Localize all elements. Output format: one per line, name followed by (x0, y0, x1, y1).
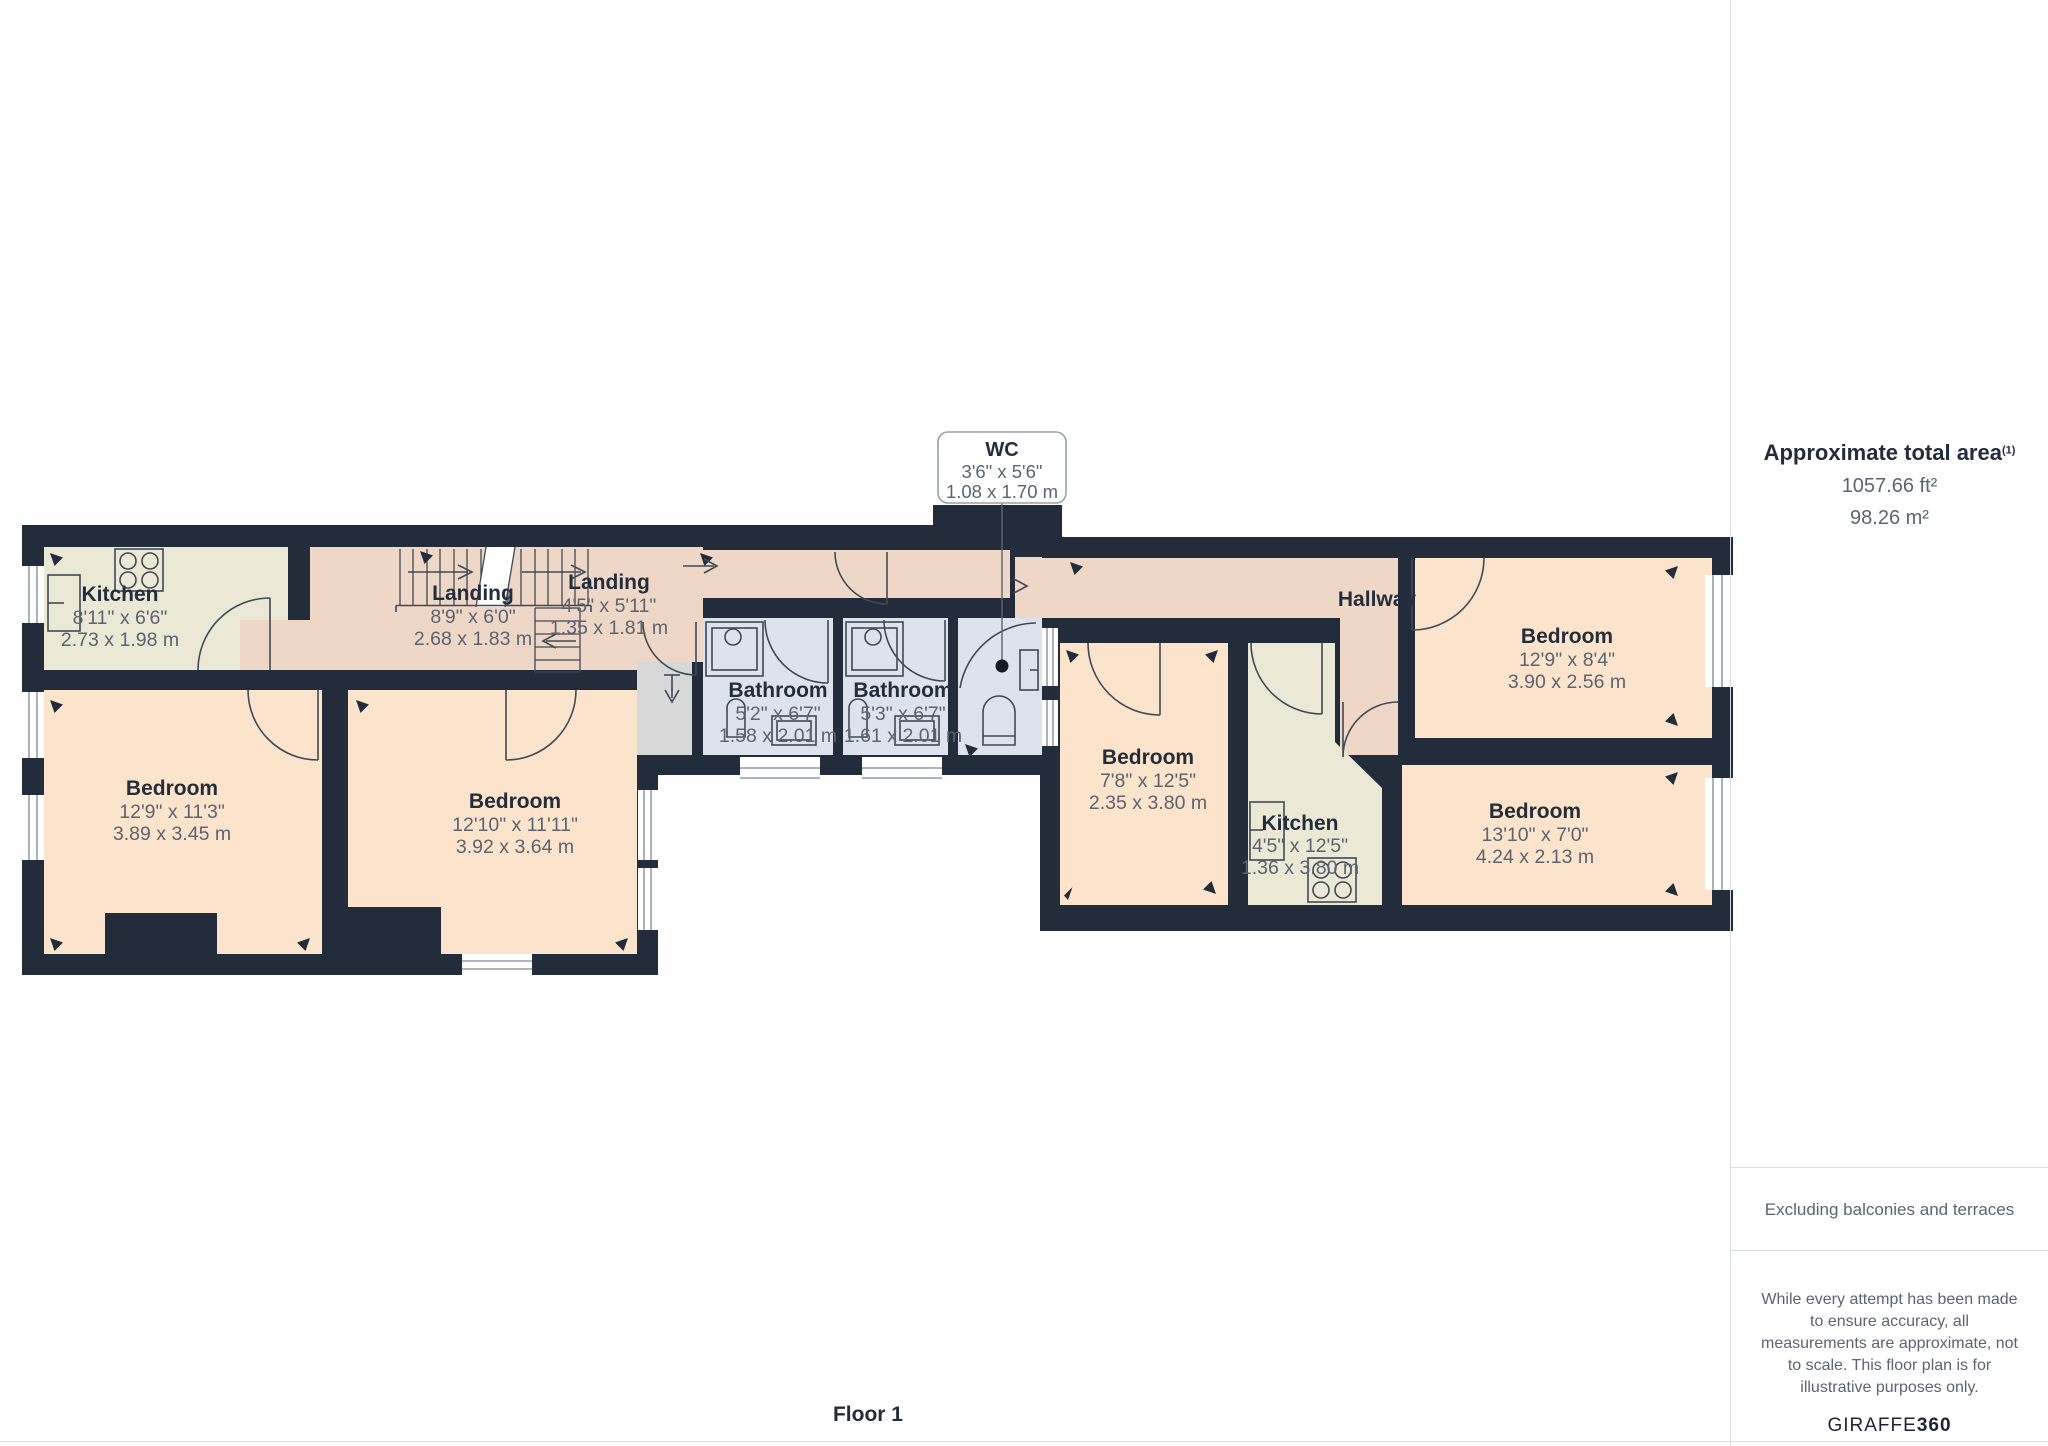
disclaimer-text: While every attempt has been made to ens… (1757, 1289, 2023, 1399)
svg-text:Landing: Landing (432, 582, 514, 605)
svg-text:3.89 x 3.45 m: 3.89 x 3.45 m (113, 823, 231, 845)
svg-text:Bedroom: Bedroom (1489, 800, 1581, 823)
svg-text:1.35 x 1.81 m: 1.35 x 1.81 m (550, 617, 668, 639)
svg-text:7'8" x 12'5": 7'8" x 12'5" (1100, 770, 1196, 792)
label-bedroom-4: Bedroom 12'9" x 8'4" 3.90 x 2.56 m (1508, 625, 1626, 693)
svg-text:Bedroom: Bedroom (1102, 746, 1194, 769)
floor-label: Floor 1 (768, 1403, 968, 1427)
svg-text:5'3" x 6'7": 5'3" x 6'7" (860, 703, 945, 725)
svg-text:WC: WC (985, 439, 1018, 461)
label-bathroom-2: Bathroom 5'3" x 6'7" 1.61 x 2.01 m (844, 679, 962, 747)
svg-text:3.90 x 2.56 m: 3.90 x 2.56 m (1508, 671, 1626, 693)
svg-text:1.61 x 2.01 m: 1.61 x 2.01 m (844, 725, 962, 747)
svg-text:Bedroom: Bedroom (1521, 625, 1613, 648)
brand-regular: GIRAFFE (1827, 1415, 1916, 1436)
label-bedroom-3: Bedroom 7'8" x 12'5" 2.35 x 3.80 m (1089, 746, 1207, 814)
svg-text:Kitchen: Kitchen (1261, 812, 1338, 835)
label-bedroom-5: Bedroom 13'10" x 7'0" 4.24 x 2.13 m (1476, 800, 1594, 868)
total-area-m: 98.26 m² (1731, 507, 2048, 530)
svg-text:Bathroom: Bathroom (853, 679, 952, 702)
svg-text:2.73 x 1.98 m: 2.73 x 1.98 m (61, 629, 179, 651)
svg-text:Bathroom: Bathroom (728, 679, 827, 702)
bedroom-4-floor (1415, 558, 1712, 738)
label-hallway: Hallway (1338, 588, 1417, 611)
wc-callout-dot (996, 660, 1009, 673)
label-bedroom-2: Bedroom 12'10" x 11'11" 3.92 x 3.64 m (452, 790, 578, 858)
svg-text:4'5" x 12'5": 4'5" x 12'5" (1252, 835, 1348, 857)
svg-text:1.08 x 1.70 m: 1.08 x 1.70 m (946, 481, 1058, 502)
svg-text:13'10" x 7'0": 13'10" x 7'0" (1482, 824, 1589, 846)
brand-bold: 360 (1917, 1415, 1952, 1436)
svg-text:4'5" x 5'11": 4'5" x 5'11" (562, 595, 657, 617)
svg-text:3'6" x 5'6": 3'6" x 5'6" (962, 461, 1043, 482)
total-area-ft: 1057.66 ft² (1731, 475, 2048, 498)
svg-text:8'9" x 6'0": 8'9" x 6'0" (430, 606, 515, 628)
svg-text:12'9" x 8'4": 12'9" x 8'4" (1519, 649, 1615, 671)
sidebar: Approximate total area(1) 1057.66 ft² 98… (1730, 0, 2048, 1446)
svg-text:12'10" x 11'11": 12'10" x 11'11" (452, 814, 578, 836)
svg-text:3.92 x 3.64 m: 3.92 x 3.64 m (456, 836, 574, 858)
total-area-title: Approximate total area (1764, 440, 2002, 465)
total-area-footnote-marker: (1) (2002, 445, 2015, 457)
svg-text:Landing: Landing (568, 571, 650, 594)
svg-text:Bedroom: Bedroom (469, 790, 561, 813)
svg-text:1.58 x 2.01 m: 1.58 x 2.01 m (719, 725, 837, 747)
svg-text:1.36 x 3.80 m: 1.36 x 3.80 m (1241, 857, 1359, 879)
label-bathroom-1: Bathroom 5'2" x 6'7" 1.58 x 2.01 m (719, 679, 837, 747)
svg-text:2.35 x 3.80 m: 2.35 x 3.80 m (1089, 792, 1207, 814)
floorplan-page: Kitchen 8'11" x 6'6" 2.73 x 1.98 m Landi… (0, 0, 2048, 1446)
total-area-block: Approximate total area(1) 1057.66 ft² 98… (1731, 440, 2048, 530)
brand-logo: GIRAFFE360 (1731, 1415, 2048, 1437)
svg-text:4.24 x 2.13 m: 4.24 x 2.13 m (1476, 846, 1594, 868)
shaft-floor (637, 662, 692, 755)
svg-text:Hallway: Hallway (1338, 588, 1417, 611)
label-bedroom-1: Bedroom 12'9" x 11'3" 3.89 x 3.45 m (113, 777, 231, 845)
wc-floor (958, 618, 1042, 755)
svg-text:5'2" x 6'7": 5'2" x 6'7" (735, 703, 820, 725)
svg-text:Bedroom: Bedroom (126, 777, 218, 800)
svg-text:Kitchen: Kitchen (81, 583, 158, 606)
svg-text:12'9" x 11'3": 12'9" x 11'3" (119, 801, 225, 823)
excluding-note: Excluding balconies and terraces (1731, 1167, 2048, 1251)
svg-text:2.68 x 1.83 m: 2.68 x 1.83 m (414, 628, 532, 650)
svg-text:8'11" x 6'6": 8'11" x 6'6" (73, 607, 168, 629)
disclaimer-block: While every attempt has been made to ens… (1731, 1250, 2048, 1442)
